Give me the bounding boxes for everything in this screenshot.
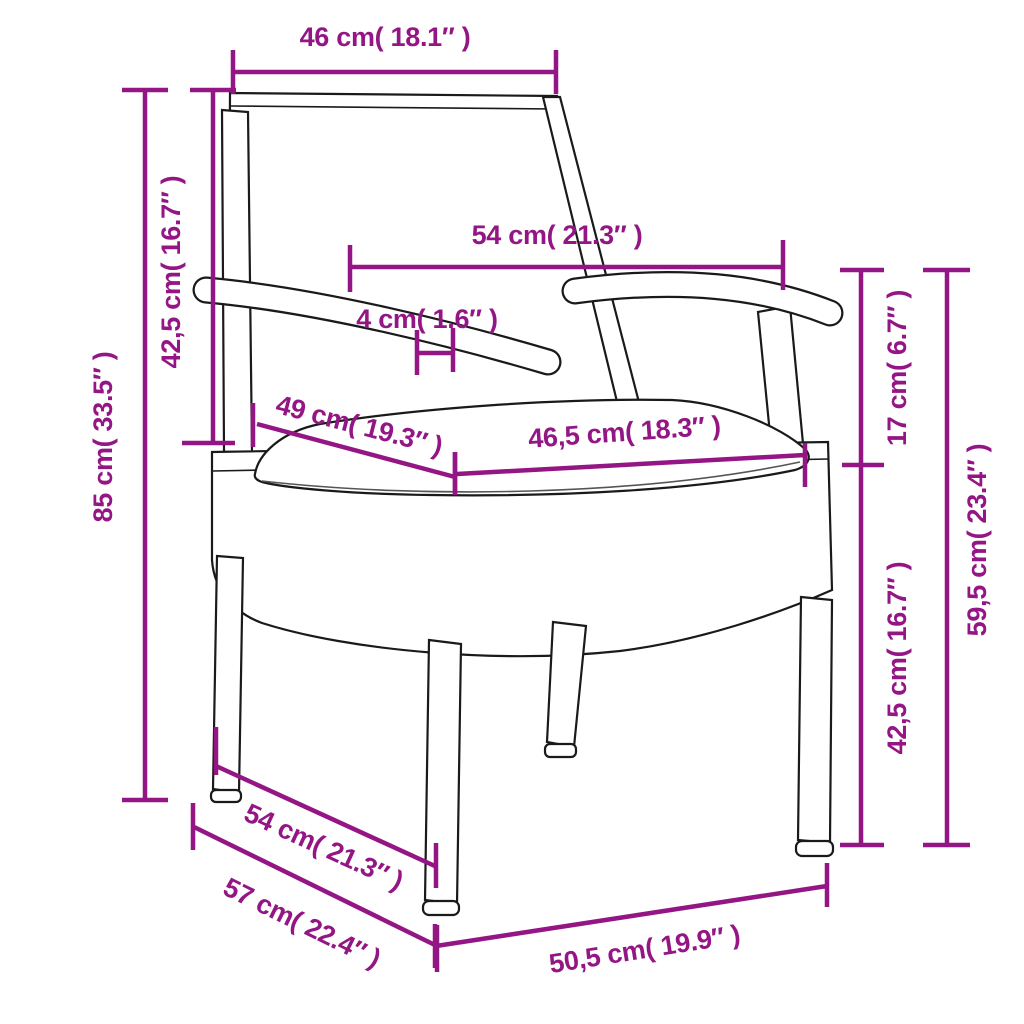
dim-base-depth-top-label: 54 cm( 21.3″ ) <box>240 798 408 896</box>
dimension-lines <box>233 50 556 94</box>
leg-cap <box>423 901 459 915</box>
dim-seat-height-label: 42,5 cm( 16.7″ ) <box>882 562 912 755</box>
leg-cap <box>545 744 576 757</box>
chair-illustration <box>206 93 833 915</box>
dim-total-height-label: 85 cm( 33.5″ ) <box>88 352 118 523</box>
dim-base-width-label: 50,5 cm( 19.9″ ) <box>547 919 742 979</box>
dim-arm-above-seat-label: 17 cm( 6.7″ ) <box>882 290 912 446</box>
leg-back-right-inner <box>545 622 586 757</box>
leg-front-center <box>423 640 461 915</box>
dim-top-width-label: 46 cm( 18.1″ ) <box>300 22 471 52</box>
diagram-svg: 46 cm( 18.1″ ) 85 cm( 33.5″ ) 42,5 cm( 1… <box>0 0 1024 1024</box>
leg-cap <box>211 790 241 802</box>
dim-base-depth-bottom-label: 57 cm( 22.4″ ) <box>219 872 386 974</box>
dim-base-depth-top: 54 cm( 21.3″ ) <box>216 727 437 896</box>
dim-base-width: 50,5 cm( 19.9″ ) <box>435 863 827 979</box>
dim-arm-height-label: 59,5 cm( 23.4″ ) <box>962 444 992 637</box>
leg-cap <box>796 841 833 856</box>
dim-seat-height: 42,5 cm( 16.7″ ) <box>840 465 912 845</box>
leg-front-right <box>796 597 833 856</box>
dimension-lines <box>840 270 884 465</box>
dim-arm-height: 59,5 cm( 23.4″ ) <box>923 270 992 845</box>
dim-backrest-height-label: 42,5 cm( 16.7″ ) <box>156 176 186 369</box>
dim-arm-above-seat: 17 cm( 6.7″ ) <box>840 270 912 465</box>
dim-top-width: 46 cm( 18.1″ ) <box>233 22 556 94</box>
dimension-lines <box>840 465 884 845</box>
dim-armrest-span-label: 54 cm( 21.3″ ) <box>472 220 643 250</box>
product-dimension-diagram: 46 cm( 18.1″ ) 85 cm( 33.5″ ) 42,5 cm( 1… <box>0 0 1024 1024</box>
dim-armrest-thickness-label: 4 cm( 1.6″ ) <box>356 304 497 334</box>
